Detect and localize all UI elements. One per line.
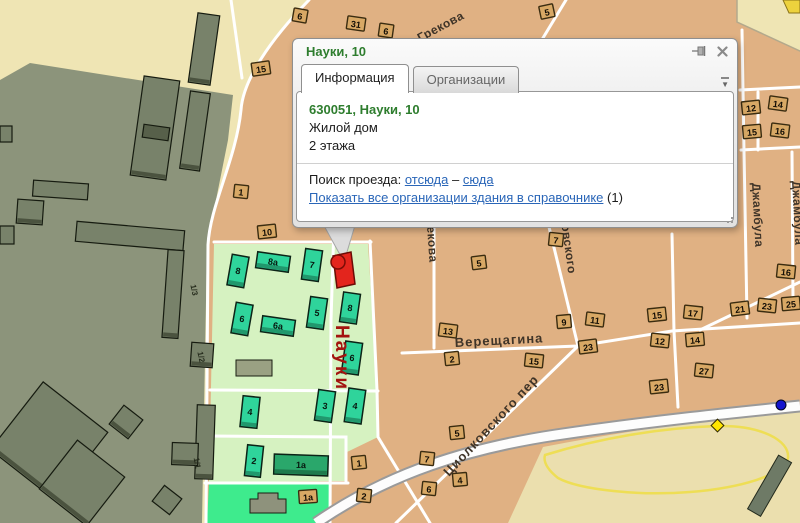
building-badge[interactable]: 12 [650,333,669,348]
orgs-count: (1) [607,190,623,205]
building-badge-label: 27 [698,366,709,377]
blue-dot-marker[interactable] [776,400,786,410]
orgs-link[interactable]: Показать все организации здания в справо… [309,190,603,205]
divider [297,163,733,164]
industrial-building[interactable] [0,126,12,142]
building-badge-label: 2 [361,491,367,501]
building-badge[interactable]: 15 [742,124,761,139]
building-badge[interactable]: 5 [449,425,464,439]
building-badge-label: 12 [654,336,665,347]
building-badge-label: 1 [238,187,244,197]
building-badge[interactable]: 6 [292,8,308,23]
building-badge[interactable]: 1 [233,184,248,198]
building-badge-label: 6 [426,484,432,494]
building-badge[interactable]: 23 [578,339,597,354]
green-zone-gray-building[interactable] [236,360,272,376]
building-badge-label: 31 [350,19,361,30]
green-building[interactable]: 1а [274,454,329,476]
building-badge-label: 9 [561,317,567,327]
building-badge[interactable]: 14 [768,96,788,111]
industrial-building[interactable] [0,226,14,244]
pin-icon[interactable] [692,45,706,57]
building-badge-label: 10 [262,227,273,238]
building-badge[interactable]: 10 [257,224,276,239]
popup-body: 630051, Науки, 10 Жилой дом 2 этажа Поис… [296,91,734,222]
building-badge[interactable]: 23 [649,379,668,394]
building-badge-label: 23 [761,301,772,312]
building-badge-label: 7 [424,454,430,464]
industrial-building[interactable] [142,124,170,140]
building-badge-label: 15 [528,356,539,367]
building-badge-label: 1 [356,458,362,468]
building-badge[interactable]: 23 [757,298,776,313]
green-building[interactable]: 3 [314,389,335,422]
building-badge-label: 4 [457,475,463,485]
route-to-link[interactable]: сюда [463,172,494,187]
tab-information[interactable]: Информация [301,64,409,93]
building-badge-label: 25 [786,299,797,310]
resize-grip[interactable] [731,221,733,223]
green-building-label: 4 [247,407,253,417]
green-building[interactable]: 4 [240,396,260,429]
building-badge[interactable]: 21 [730,301,749,316]
tab-organizations[interactable]: Организации [413,66,520,93]
building-badge[interactable]: 6 [421,481,436,495]
green-building[interactable]: 7 [301,248,322,281]
building-badge[interactable]: 16 [770,123,789,138]
building-badge-label: 7 [553,235,559,245]
green-building-label: 2 [251,456,257,466]
building-badge-label: 15 [652,310,663,321]
route-dash: – [452,172,459,187]
building-badge-label: 16 [774,126,785,137]
building-badge-label: 13 [442,326,453,337]
industrial-building[interactable] [33,180,89,200]
route-line: Поиск проезда: отсюда – сюда [309,171,721,189]
orgs-line: Показать все организации здания в справо… [309,189,721,207]
building-type: Жилой дом [309,119,721,137]
building-badge-label: 15 [255,64,266,75]
building-badge[interactable]: 6 [378,23,394,38]
selected-point [331,255,345,269]
building-badge[interactable]: 27 [694,363,713,378]
building-badge[interactable]: 14 [685,332,704,347]
close-icon[interactable] [717,46,728,57]
building-badge[interactable]: 12 [741,100,760,115]
building-badge-label: 1а [303,492,315,503]
building-badge[interactable]: 2 [356,488,371,502]
industrial-building[interactable] [16,199,44,225]
building-badge[interactable]: 31 [346,16,366,31]
building-badge[interactable]: 5 [539,4,555,20]
building-badge[interactable]: 15 [251,61,271,76]
building-badge-label: 23 [654,382,665,393]
floors-line: 2 этажа [309,137,721,155]
green-building[interactable]: 5 [306,296,327,329]
building-badge-label: 21 [734,304,745,315]
building-badge[interactable]: 2 [444,351,459,365]
building-badge[interactable]: 17 [683,305,702,320]
building-badge-label: 23 [582,342,593,353]
route-from-link[interactable]: отсюда [405,172,449,187]
building-badge[interactable]: 1а [299,489,318,503]
green-building[interactable]: 4 [344,388,366,424]
info-popup: Науки, 10 Информация Организации ▼ 63005… [292,38,738,228]
building-badge[interactable]: 1 [351,455,366,469]
dropdown-arrow-icon[interactable]: ▼ [721,77,729,89]
building-badge[interactable]: 15 [647,307,666,322]
building-badge[interactable]: 25 [781,296,800,311]
building-badge[interactable]: 9 [556,314,571,328]
building-badge[interactable]: 11 [585,312,604,327]
popup-tabs: Информация Организации [301,64,519,93]
green-building-label: 1а [296,460,307,470]
building-badge-label: 5 [454,428,460,438]
building-badge-label: 12 [746,103,757,114]
building-badge[interactable]: 16 [776,264,795,279]
green-building[interactable]: 8 [339,292,360,324]
green-building[interactable]: 2 [244,445,263,478]
street-label: Науки [331,325,352,391]
building-badge[interactable]: 5 [471,255,486,270]
building-badge[interactable]: 7 [419,451,434,465]
building-badge[interactable]: 15 [524,353,543,368]
building-badge-label: 14 [772,99,783,110]
building-badge-label: 11 [590,315,601,326]
address-line: 630051, Науки, 10 [309,101,721,119]
building-badge-label: 14 [690,335,701,346]
route-label: Поиск проезда: [309,172,401,187]
building-badge-label: 16 [780,267,791,278]
building-badge-label: 17 [687,308,698,319]
building-badge-label: 2 [449,354,455,364]
popup-window-buttons [692,45,728,57]
map-viewport[interactable]: 1/31/21/1 88а75866а643421а 1511063165121… [0,0,800,523]
popup-title: Науки, 10 [306,44,366,59]
building-badge-label: 15 [747,127,758,138]
